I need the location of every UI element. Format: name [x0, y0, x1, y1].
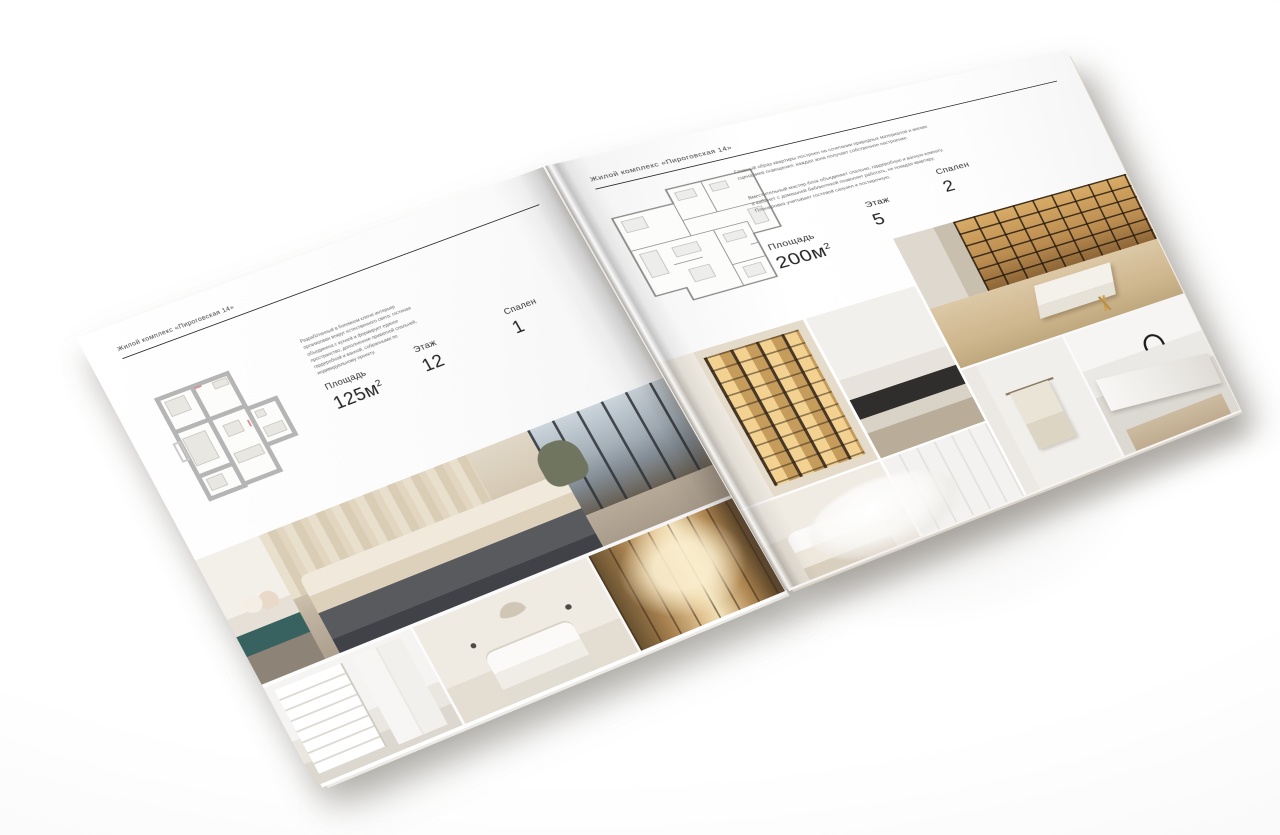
stat-bedrooms-value: 2 [940, 171, 981, 196]
wall-sconce [564, 603, 572, 610]
black-faucet [1140, 331, 1165, 350]
stat-floor-value: 12 [418, 350, 450, 377]
towel [1010, 380, 1076, 450]
stat-floor-value: 5 [869, 206, 901, 229]
stat-bedrooms: Спален 1 [502, 296, 550, 338]
stat-floor: Этаж 12 [411, 338, 450, 377]
stat-bedrooms: Спален 2 [934, 160, 981, 196]
feather-wall-decor [491, 595, 531, 623]
brochure-mockup-scene: Жилой комплекс «Пироговская 14» [0, 0, 1280, 835]
wall-sconce [469, 642, 477, 649]
apartment-description-2: Вместительный мастер-блок объединяет спа… [747, 147, 953, 215]
stat-floor: Этаж 5 [863, 195, 901, 230]
floor-plan-125m2 [148, 357, 316, 507]
